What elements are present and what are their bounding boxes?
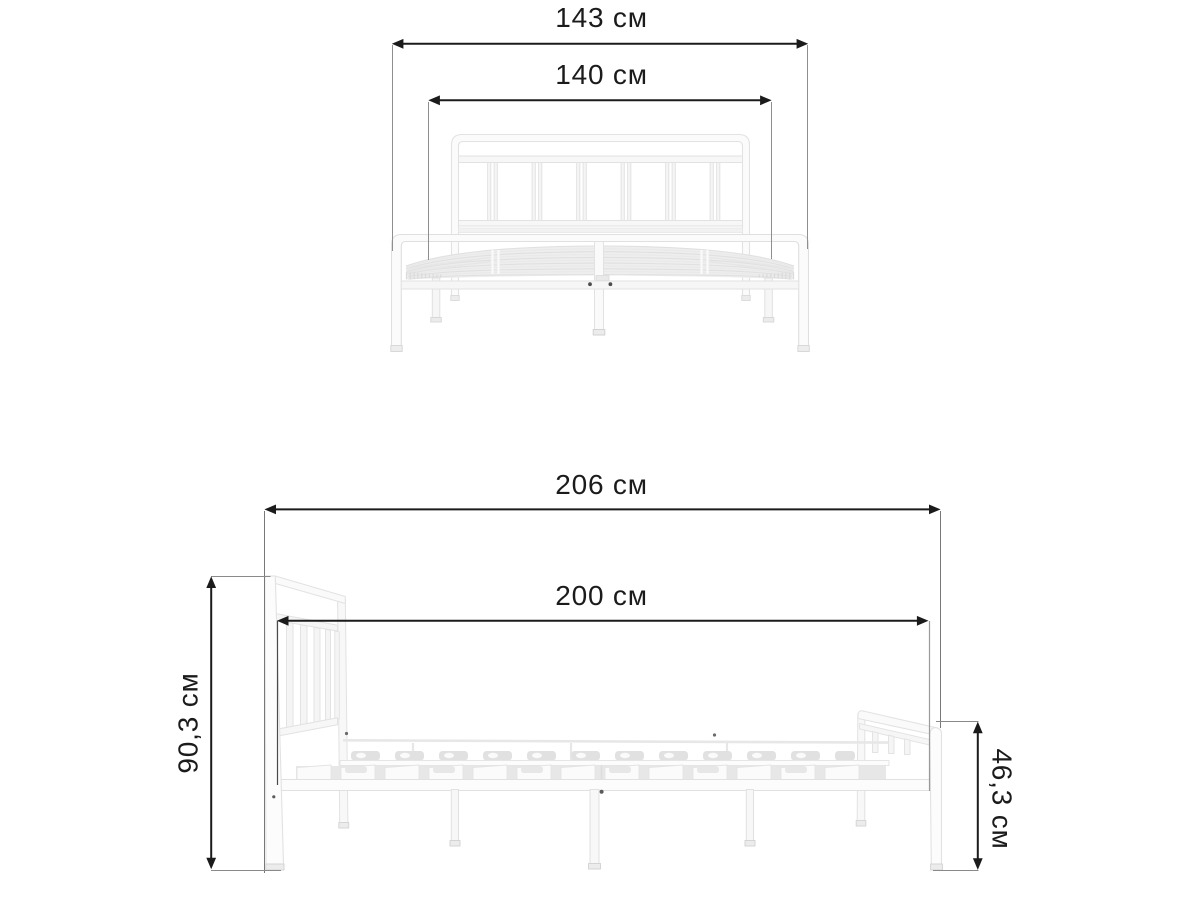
svg-text:200 см: 200 см bbox=[555, 580, 648, 611]
svg-text:90,3 см: 90,3 см bbox=[173, 672, 204, 773]
svg-text:140 см: 140 см bbox=[555, 59, 648, 90]
svg-text:46,3 см: 46,3 см bbox=[986, 748, 1017, 849]
svg-text:206 см: 206 см bbox=[555, 469, 648, 500]
svg-text:143 см: 143 см bbox=[555, 2, 648, 33]
